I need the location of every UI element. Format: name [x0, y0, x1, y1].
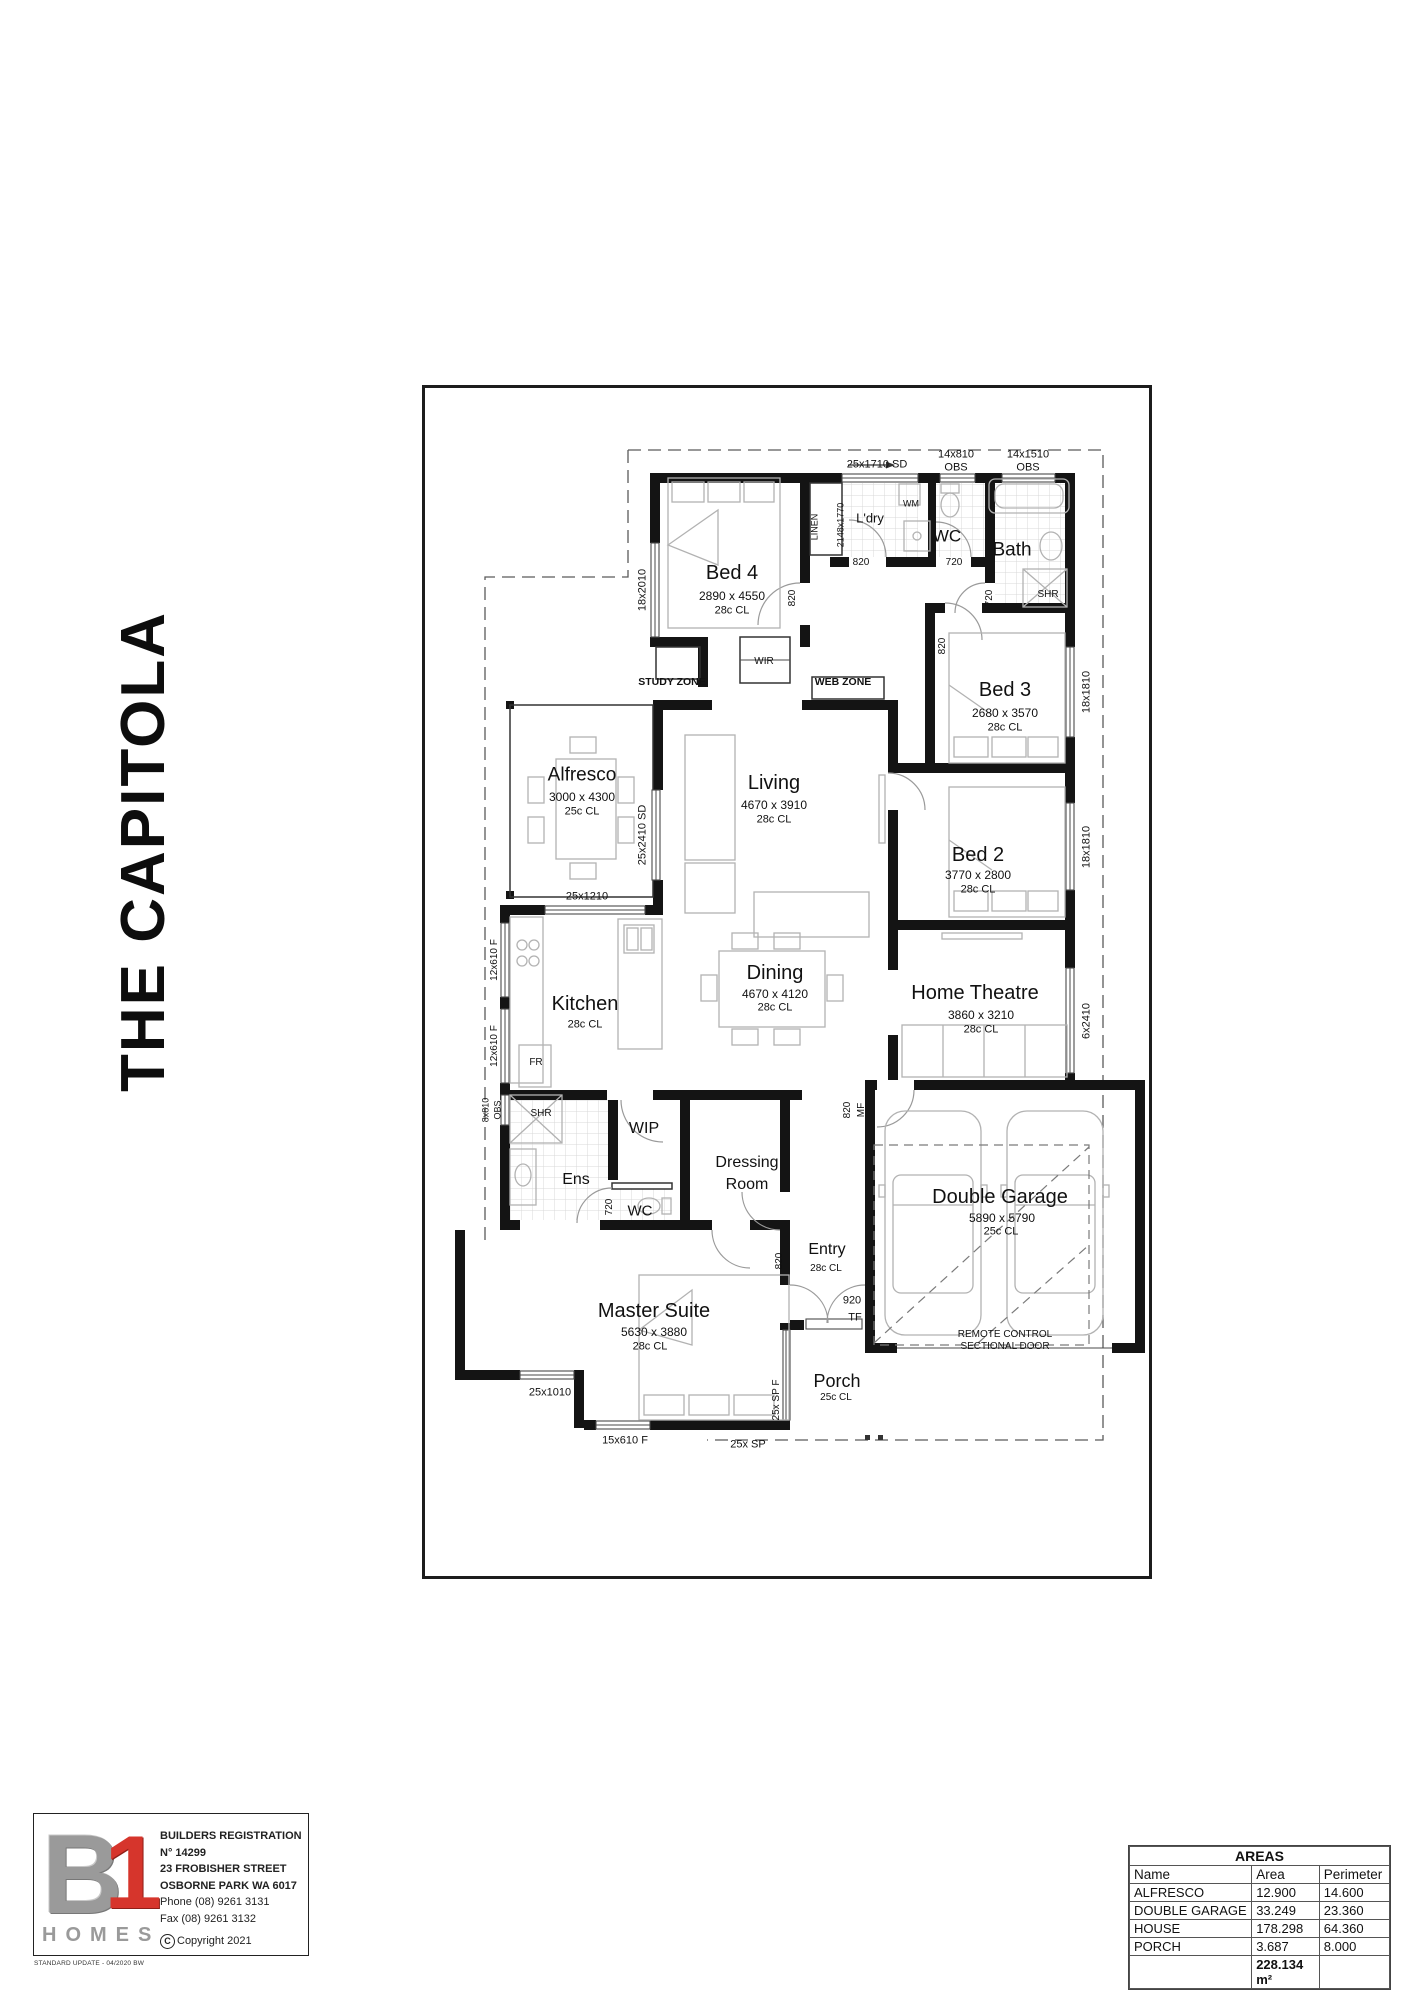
copyright-text: Copyright 2021	[177, 1933, 252, 1950]
copyright-line: C Copyright 2021	[160, 1933, 302, 1950]
areas-col-perimeter: Perimeter	[1319, 1866, 1389, 1884]
label-theatre-ceil: 28c CL	[964, 1025, 999, 1036]
label-mf2: MF	[857, 1103, 867, 1117]
label-master-ceil: 28c CL	[633, 1342, 668, 1353]
label-d-bed4: 820	[788, 590, 798, 607]
label-sd-alfresco: 25x2410 SD	[638, 805, 649, 866]
label-dressing-2: Room	[726, 1177, 769, 1193]
closets	[510, 483, 884, 1189]
label-kitchen-ceil: 28c CL	[568, 1020, 603, 1031]
areas-row-total: 228.134 m²	[1130, 1956, 1390, 1989]
label-porch-name: Porch	[813, 1372, 860, 1390]
label-living-dims: 4670 x 3910	[741, 799, 807, 811]
label-dressing-1: Dressing	[715, 1155, 778, 1171]
label-w-theatre: 6x2410	[1082, 1003, 1093, 1039]
label-fr: FR	[529, 1058, 542, 1068]
label-obs1b: OBS	[944, 463, 967, 474]
label-wm: WM	[903, 500, 919, 509]
label-garage-dims: 5890 x 5790	[969, 1212, 1035, 1224]
plan-title: THE CAPITOLA	[84, 468, 202, 1234]
areas-row-garage: DOUBLE GARAGE 33.249 23.360	[1130, 1902, 1390, 1920]
label-sd-top: 25x1710 SD	[847, 460, 908, 471]
label-obs1a: 14x810	[938, 450, 974, 461]
label-obs3a: 8x810	[482, 1098, 491, 1123]
label-bed2-name: Bed 2	[952, 845, 1004, 865]
reg-phone: Phone (08) 9261 3131	[160, 1894, 302, 1911]
label-d-ldry: 820	[853, 558, 870, 568]
label-alfresco-dims: 3000 x 4300	[549, 791, 615, 803]
label-w-kitchen: 25x1210	[566, 892, 608, 903]
areas-col-area: Area	[1252, 1866, 1320, 1884]
reg-line-4: OSBORNE PARK WA 6017	[160, 1878, 302, 1895]
areas-total-value: 228.134 m²	[1252, 1956, 1320, 1989]
label-dining-ceil: 28c CL	[758, 1003, 793, 1014]
areas-cell-name: ALFRESCO	[1130, 1884, 1252, 1902]
areas-cell-name: DOUBLE GARAGE	[1130, 1902, 1252, 1920]
label-living-ceil: 28c CL	[757, 815, 792, 826]
label-garage-name: Double Garage	[932, 1187, 1068, 1207]
label-living-name: Living	[748, 773, 800, 793]
areas-cell-perimeter: 8.000	[1319, 1938, 1389, 1956]
label-w-k1: 12x610 F	[490, 939, 500, 981]
label-dining-name: Dining	[747, 963, 804, 983]
areas-cell-perimeter: 64.360	[1319, 1920, 1389, 1938]
label-obs3b: OBS	[494, 1100, 503, 1119]
areas-title: AREAS	[1130, 1847, 1390, 1866]
label-d-bath: 720	[985, 590, 995, 607]
label-w-k2: 12x610 F	[490, 1025, 500, 1067]
reg-fax: Fax (08) 9261 3132	[160, 1911, 302, 1928]
areas-row-porch: PORCH 3.687 8.000	[1130, 1938, 1390, 1956]
label-bed3-name: Bed 3	[979, 680, 1031, 700]
areas-cell-area: 33.249	[1252, 1902, 1320, 1920]
label-master-dims: 5630 x 3880	[621, 1326, 687, 1338]
label-bed4-ceil: 28c CL	[715, 606, 750, 617]
label-bed2-dims: 3770 x 2800	[945, 869, 1011, 881]
label-wc-ens: WC	[628, 1204, 653, 1219]
label-garage-note1: REMOTE CONTROL	[958, 1330, 1052, 1340]
label-bed4-dims: 2890 x 4550	[699, 590, 765, 602]
builder-logo-box: B 1 HOMES BUILDERS REGISTRATION N° 14299…	[33, 1813, 309, 1956]
logo-homes-text: HOMES	[42, 1924, 160, 1947]
copyright-icon: C	[160, 1934, 175, 1949]
areas-cell-perimeter: 23.360	[1319, 1902, 1389, 1920]
label-bed4-name: Bed 4	[706, 563, 758, 583]
label-wip: WIP	[629, 1121, 659, 1137]
label-ens: Ens	[562, 1172, 590, 1188]
label-garage-note2: SECTIONAL DOOR	[960, 1342, 1049, 1352]
label-sp: 25x SP	[730, 1440, 765, 1451]
reg-line-3: 23 FROBISHER STREET	[160, 1861, 302, 1878]
label-spf: 25x SP F	[772, 1380, 782, 1421]
label-web-zone: WEB ZONE	[815, 677, 872, 688]
label-entry-name: Entry	[808, 1242, 845, 1258]
label-entry-ceil: 28c CL	[810, 1264, 842, 1274]
label-linen: LINEN	[811, 514, 820, 541]
label-theatre-dims: 3860 x 3210	[948, 1009, 1014, 1021]
label-shr-ens: SHR	[530, 1109, 551, 1119]
label-kitchen-name: Kitchen	[552, 994, 619, 1014]
standard-update-note: STANDARD UPDATE - 04/2020 BW	[34, 1960, 144, 1967]
label-dining-dims: 4670 x 4120	[742, 988, 808, 1000]
label-d-wcens: 720	[605, 1199, 615, 1216]
label-mf1: 820	[843, 1102, 853, 1119]
areas-cell-empty	[1319, 1956, 1389, 1989]
label-w-bed4: 18x2010	[638, 569, 649, 611]
label-alfresco-name: Alfresco	[548, 766, 617, 785]
label-porch-ceil: 25c CL	[820, 1393, 852, 1403]
builder-registration-text: BUILDERS REGISTRATION N° 14299 23 FROBIS…	[160, 1822, 302, 1951]
areas-cell-area: 12.900	[1252, 1884, 1320, 1902]
label-w-bed2: 18x1810	[1082, 826, 1093, 868]
furniture	[510, 478, 1069, 1420]
label-w-master: 25x1010	[529, 1388, 571, 1399]
label-bath: Bath	[992, 541, 1031, 560]
areas-cell-perimeter: 14.600	[1319, 1884, 1389, 1902]
label-ldry: L'dry	[856, 512, 884, 525]
areas-cell-name: PORCH	[1130, 1938, 1252, 1956]
areas-table: AREAS Name Area Perimeter ALFRESCO 12.90…	[1128, 1845, 1391, 1990]
label-study-zone: STUDY ZONE	[638, 677, 705, 688]
label-obs2a: 14x1510	[1007, 450, 1049, 461]
label-w-bed3: 18x1810	[1082, 671, 1093, 713]
label-tf2: TF	[848, 1313, 861, 1324]
label-bed3-ceil: 28c CL	[988, 723, 1023, 734]
label-d-bed3: 820	[938, 638, 948, 655]
logo-letter-1: 1	[104, 1814, 162, 1933]
label-bed2-ceil: 28c CL	[961, 885, 996, 896]
areas-cell-name: HOUSE	[1130, 1920, 1252, 1938]
label-w-mbed: 15x610 F	[602, 1436, 648, 1447]
areas-cell-area: 178.298	[1252, 1920, 1320, 1938]
areas-col-name: Name	[1130, 1866, 1252, 1884]
label-bed3-dims: 2680 x 3570	[972, 707, 1038, 719]
label-alfresco-ceil: 25c CL	[565, 807, 600, 818]
areas-row-house: HOUSE 178.298 64.360	[1130, 1920, 1390, 1938]
reg-line-2: N° 14299	[160, 1845, 302, 1862]
plan-title-text: THE CAPITOLA	[108, 611, 179, 1092]
label-master-name: Master Suite	[598, 1301, 710, 1321]
label-tf1: 920	[843, 1296, 861, 1307]
areas-cell-empty	[1130, 1956, 1252, 1989]
b1-homes-logo: B 1 HOMES	[42, 1822, 160, 1951]
page: THE CAPITOLA .wall{fill:#141414;} .thin{…	[0, 0, 1414, 2000]
label-theatre-name: Home Theatre	[911, 983, 1038, 1003]
label-obs2b: OBS	[1016, 463, 1039, 474]
label-wir: WIR	[754, 657, 773, 667]
label-d-wc: 720	[946, 558, 963, 568]
areas-cell-area: 3.687	[1252, 1938, 1320, 1956]
label-ldry-dim: 2148x1770	[837, 503, 846, 548]
label-wc-top: WC	[933, 528, 961, 545]
areas-row-alfresco: ALFRESCO 12.900 14.600	[1130, 1884, 1390, 1902]
label-d-entry: 820	[775, 1253, 785, 1270]
label-shr-bath: SHR	[1037, 590, 1058, 600]
reg-line-1: BUILDERS REGISTRATION	[160, 1828, 302, 1845]
label-garage-ceil: 25c CL	[984, 1227, 1019, 1238]
